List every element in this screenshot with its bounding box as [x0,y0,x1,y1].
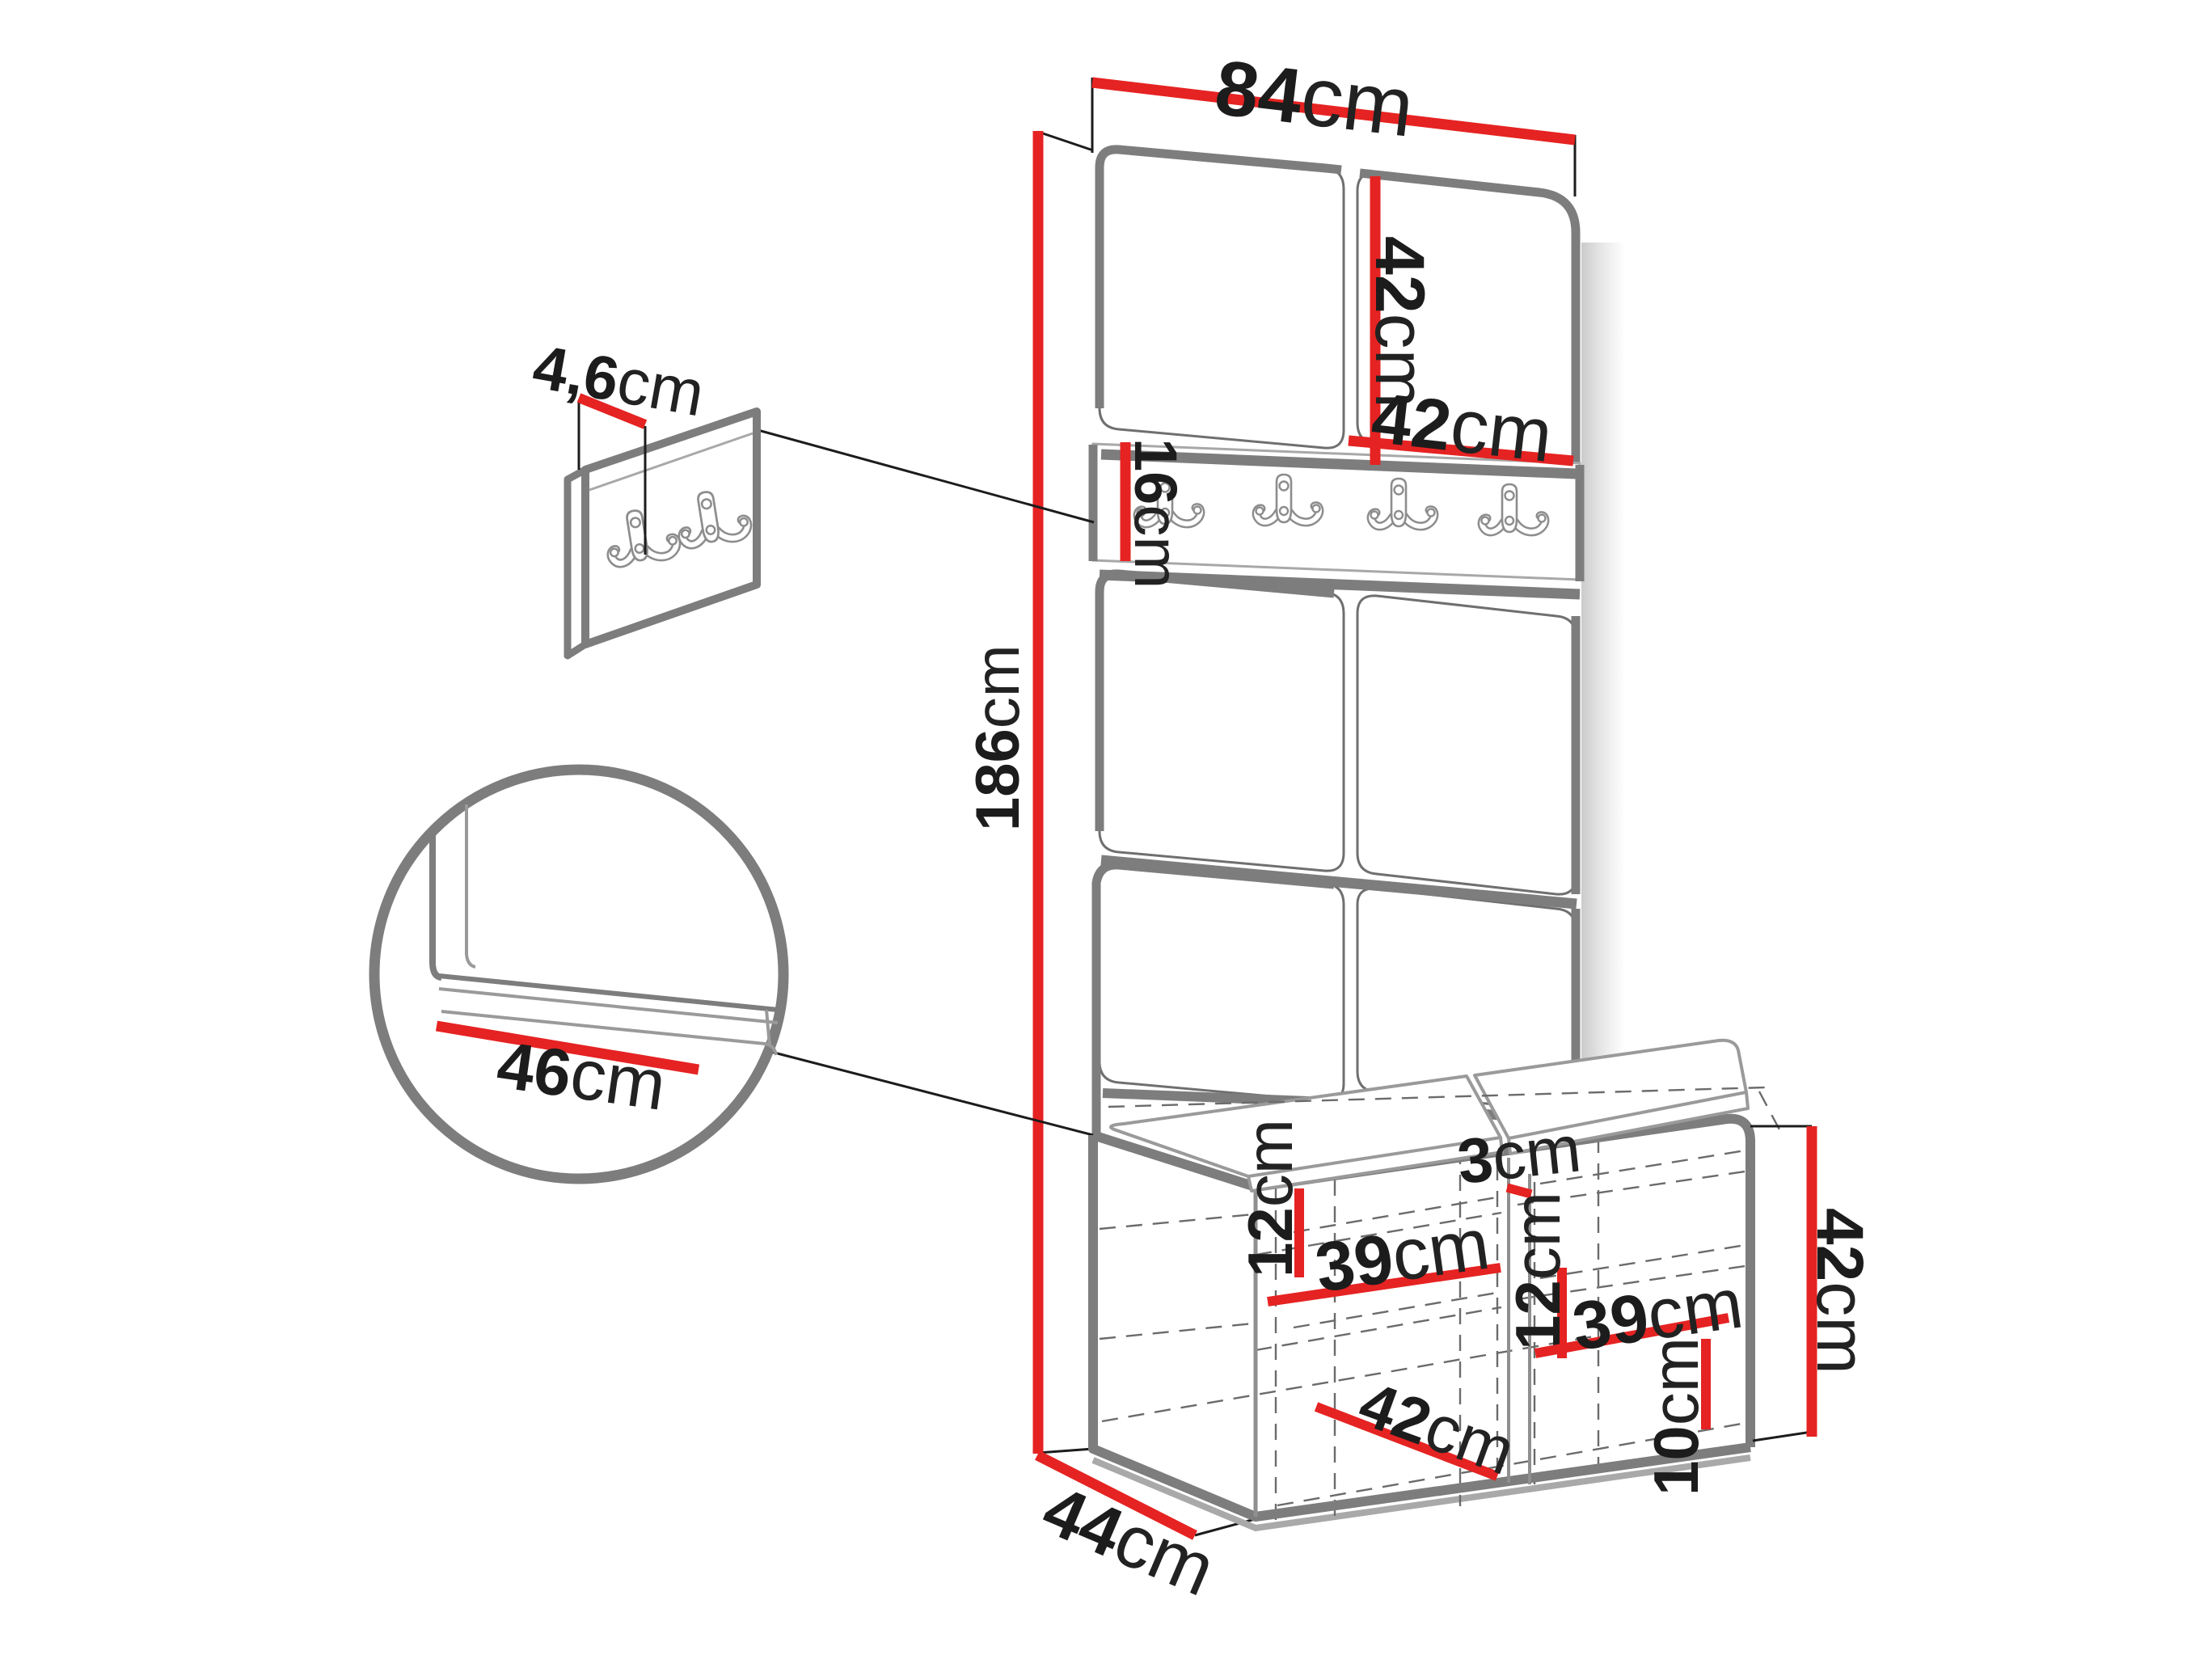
svg-text:16cm: 16cm [1121,438,1193,589]
svg-text:186cm: 186cm [961,644,1032,831]
svg-text:10cm: 10cm [1639,1337,1712,1496]
svg-text:42cm: 42cm [1802,1208,1880,1374]
svg-text:12cm: 12cm [1233,1119,1307,1277]
svg-text:12cm: 12cm [1501,1192,1574,1350]
svg-text:3cm: 3cm [1454,1112,1584,1197]
